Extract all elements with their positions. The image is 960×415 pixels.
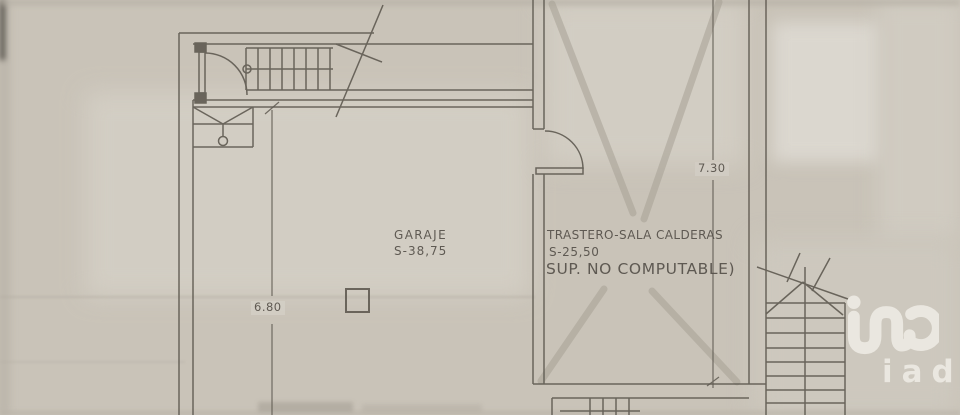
dimension-line-trastero [707, 0, 719, 388]
door-top-left [195, 43, 247, 103]
room-area-trastero: S-25,50 [549, 246, 600, 258]
pencil-cross-marks [541, 2, 737, 382]
floor-plan-photo: GARAJE S-38,75 TRASTERO-SALA CALDERAS S-… [0, 0, 960, 415]
dimension-label-6-80: 6.80 [251, 301, 285, 315]
room-area-garaje: S-38,75 [394, 245, 447, 257]
wall-lines [179, 0, 848, 415]
iad-logo-icon [844, 294, 939, 360]
room-label-garaje: GARAJE [394, 229, 447, 241]
stair-down-symbol [193, 107, 253, 147]
dimension-line-garage [265, 102, 279, 415]
room-label-trastero: TRASTERO-SALA CALDERAS [547, 229, 723, 241]
iad-watermark: iad [838, 290, 960, 402]
pillar [346, 289, 369, 312]
lower-staircase [757, 253, 848, 415]
iad-logo-text: iad [882, 354, 960, 390]
room-note-trastero: SUP. NO COMPUTABLE) [546, 262, 735, 278]
floor-plan-drawing [0, 0, 960, 415]
dimension-label-7-30: 7.30 [695, 162, 729, 176]
bottom-wall [533, 384, 766, 415]
